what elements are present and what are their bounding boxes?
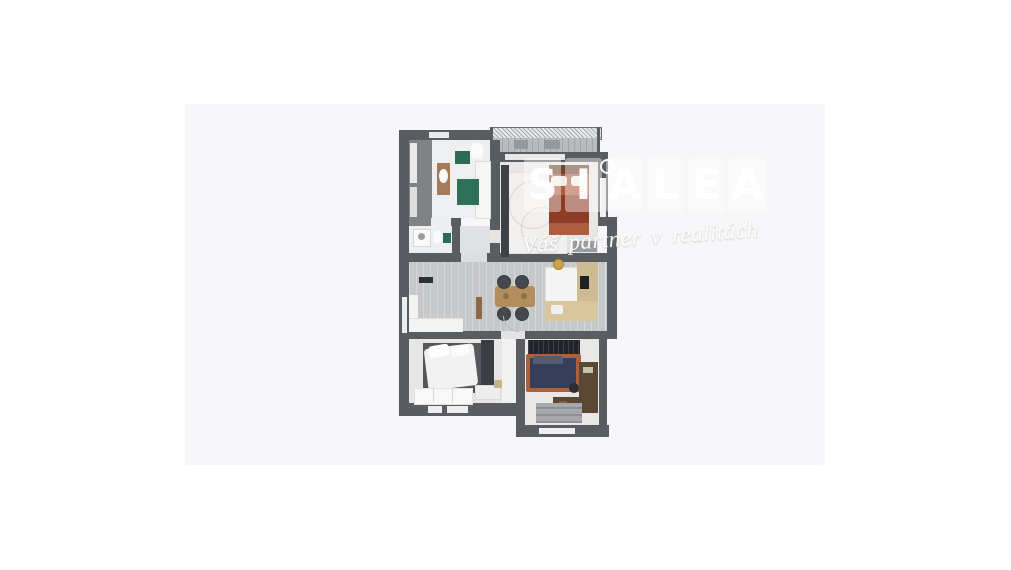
wardrobe-door-line (433, 388, 434, 403)
entry-divider-wardrobe (502, 339, 516, 403)
hall-door-gap (461, 253, 487, 262)
wardrobe-door-line (452, 388, 453, 403)
watermark-logo: S I A L E A (524, 158, 766, 212)
watermark-letter: S (524, 158, 561, 212)
wall-bath-wc (451, 218, 461, 226)
bed-pillow (533, 356, 563, 364)
sofa (409, 318, 463, 332)
bed-pillow (450, 344, 469, 357)
entry-door-gap (501, 331, 525, 339)
wall-living-bottom (525, 331, 616, 339)
table-setting (503, 293, 509, 299)
desk-items (583, 367, 593, 373)
bath-wc-door-gap (431, 218, 451, 226)
living-window (402, 297, 407, 333)
wall-shelf (476, 297, 482, 319)
balcony-lounge-chair (514, 140, 528, 149)
balcony-lounge-chair (544, 140, 560, 149)
sink (439, 169, 448, 183)
washing-machine-door (418, 233, 425, 240)
watermark-ring-icon (600, 159, 615, 174)
wall-mid-horizontal (408, 253, 461, 262)
balcony-post (597, 127, 600, 153)
wall-living-bottom (408, 331, 501, 339)
built-in-oven (580, 276, 589, 289)
bottom-door-slot (428, 406, 442, 413)
hallway-closet (410, 187, 417, 217)
watermark-letter: L (647, 158, 684, 212)
table-setting (521, 293, 527, 299)
dining-chair (497, 275, 511, 289)
gray-rug (536, 403, 582, 423)
dining-chair (515, 275, 529, 289)
wardrobe-tall (501, 165, 509, 257)
tv-unit (419, 277, 433, 283)
watermark-letter: E (688, 158, 725, 212)
dining-table (495, 286, 535, 307)
pendant-light (553, 259, 564, 270)
wall-wc-right (452, 226, 460, 253)
green-bath-mat (455, 151, 470, 164)
watermark-letter: I (565, 158, 602, 212)
wall-bath-bedroom (490, 140, 500, 230)
wall-right-bottom (599, 331, 607, 437)
wall-bedroom-divider (516, 339, 525, 403)
watermark-letter: A (729, 158, 766, 212)
wc-green-mat (443, 233, 451, 243)
wardrobe-white (414, 388, 473, 405)
bathroom-window (429, 132, 449, 138)
kitchen-fridge-unit (545, 267, 579, 303)
photo-background: S I A L E A Váš partner v realitách (185, 104, 825, 465)
bottom-door-slot (447, 406, 468, 413)
wall-bath-bedroom (490, 243, 500, 253)
wardrobe-dark (481, 340, 494, 387)
green-bath-mat (457, 179, 479, 205)
toilet (471, 143, 483, 159)
wc-toilet (433, 231, 442, 243)
bedroom-door-gap (490, 230, 500, 243)
basket (494, 380, 502, 388)
hall-nook-floor (460, 226, 490, 253)
bump-window (539, 428, 575, 434)
hallway-closet (410, 143, 417, 183)
desk-chair (569, 383, 579, 393)
kitchen-sink (551, 305, 563, 314)
wall-left (399, 130, 409, 416)
